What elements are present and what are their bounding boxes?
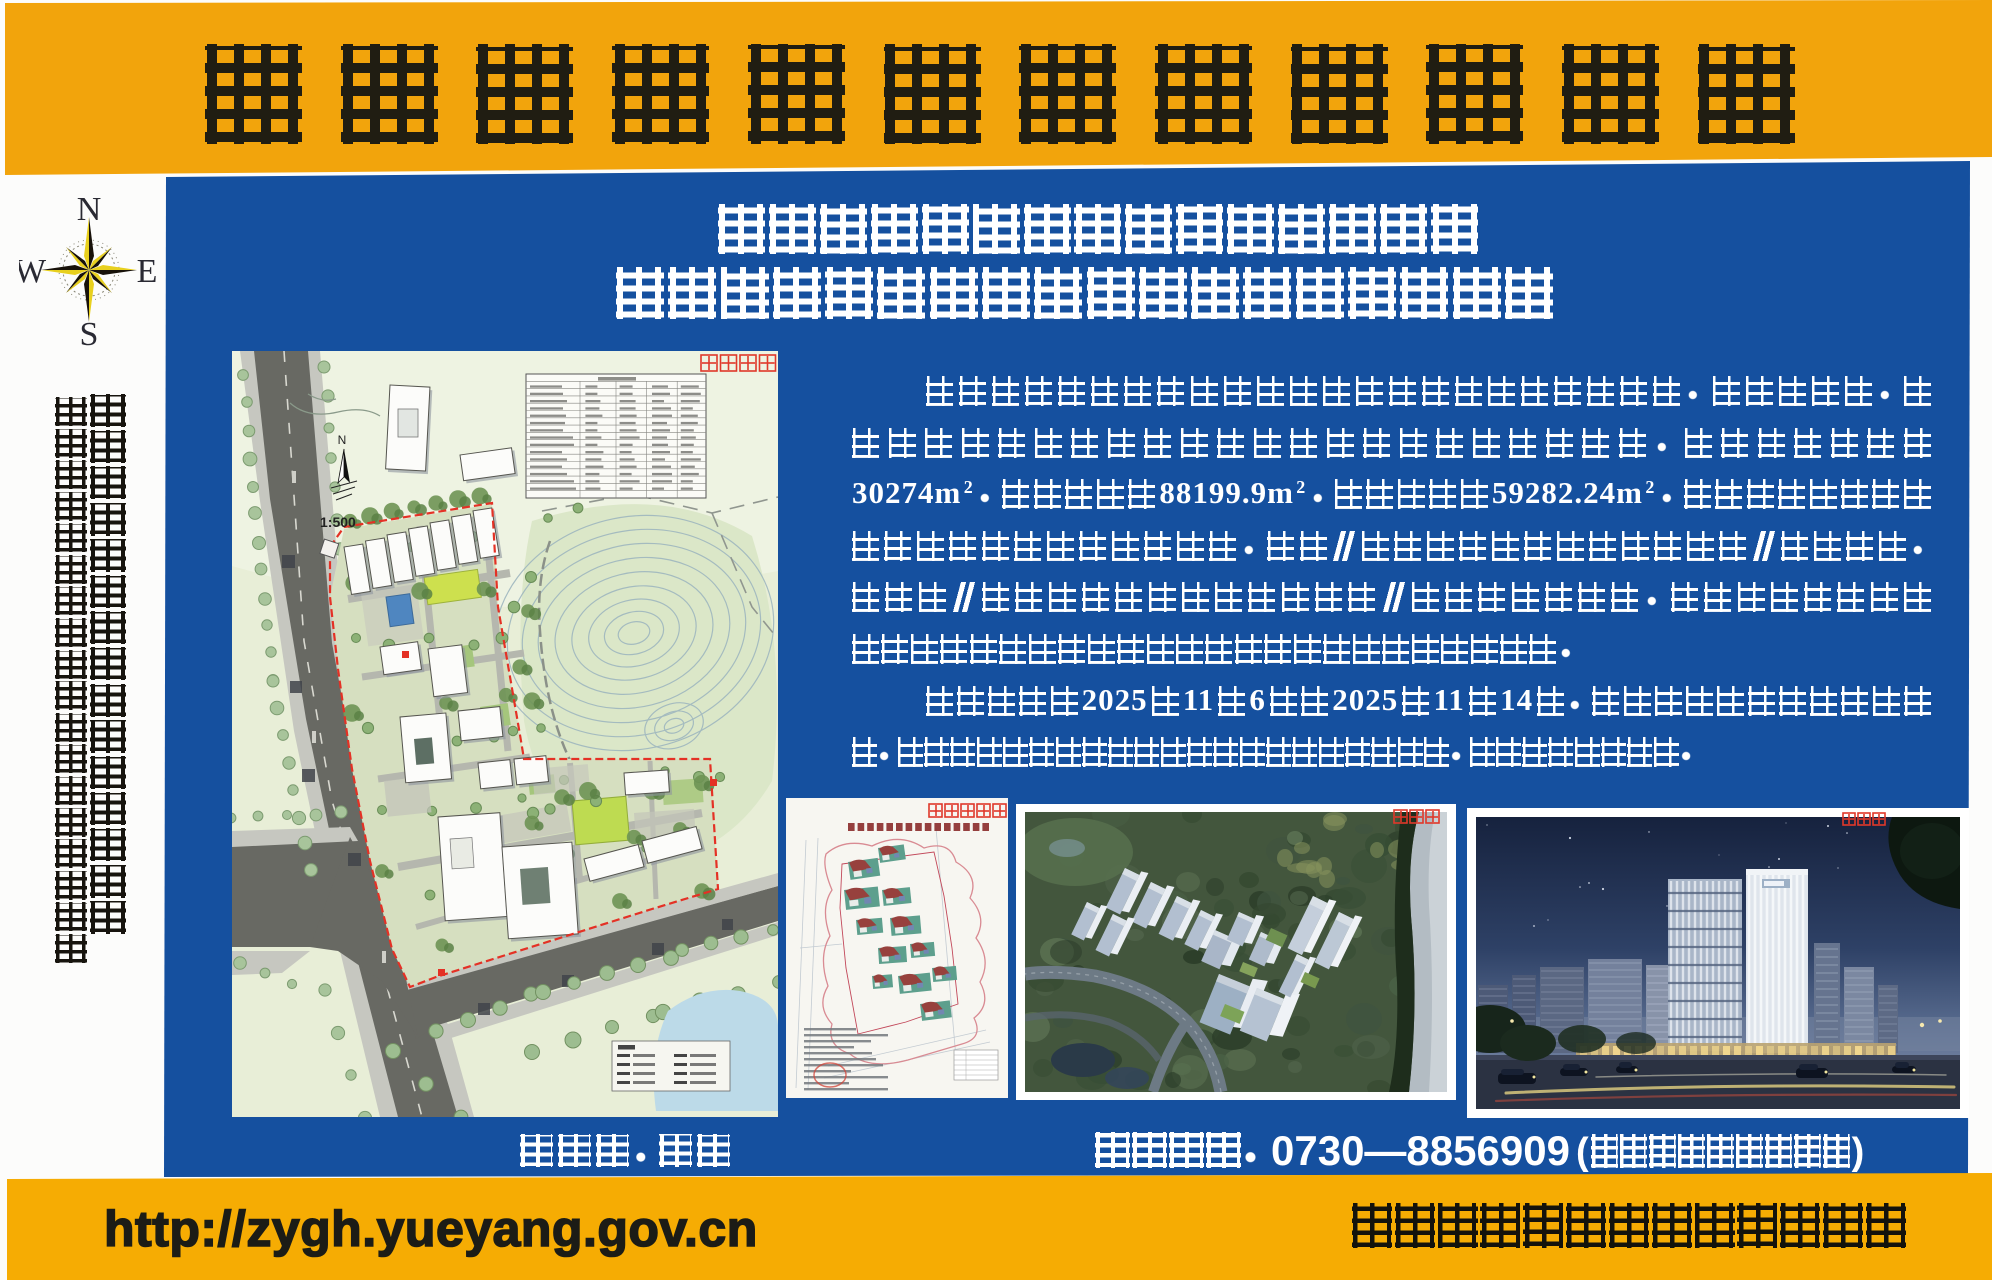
- svg-text:N: N: [338, 433, 347, 447]
- svg-text:W: W: [19, 253, 47, 290]
- svg-text:E: E: [137, 253, 158, 290]
- svg-text:1:500: 1:500: [320, 514, 356, 530]
- svg-text:N: N: [77, 198, 102, 228]
- svg-text:S: S: [80, 316, 99, 348]
